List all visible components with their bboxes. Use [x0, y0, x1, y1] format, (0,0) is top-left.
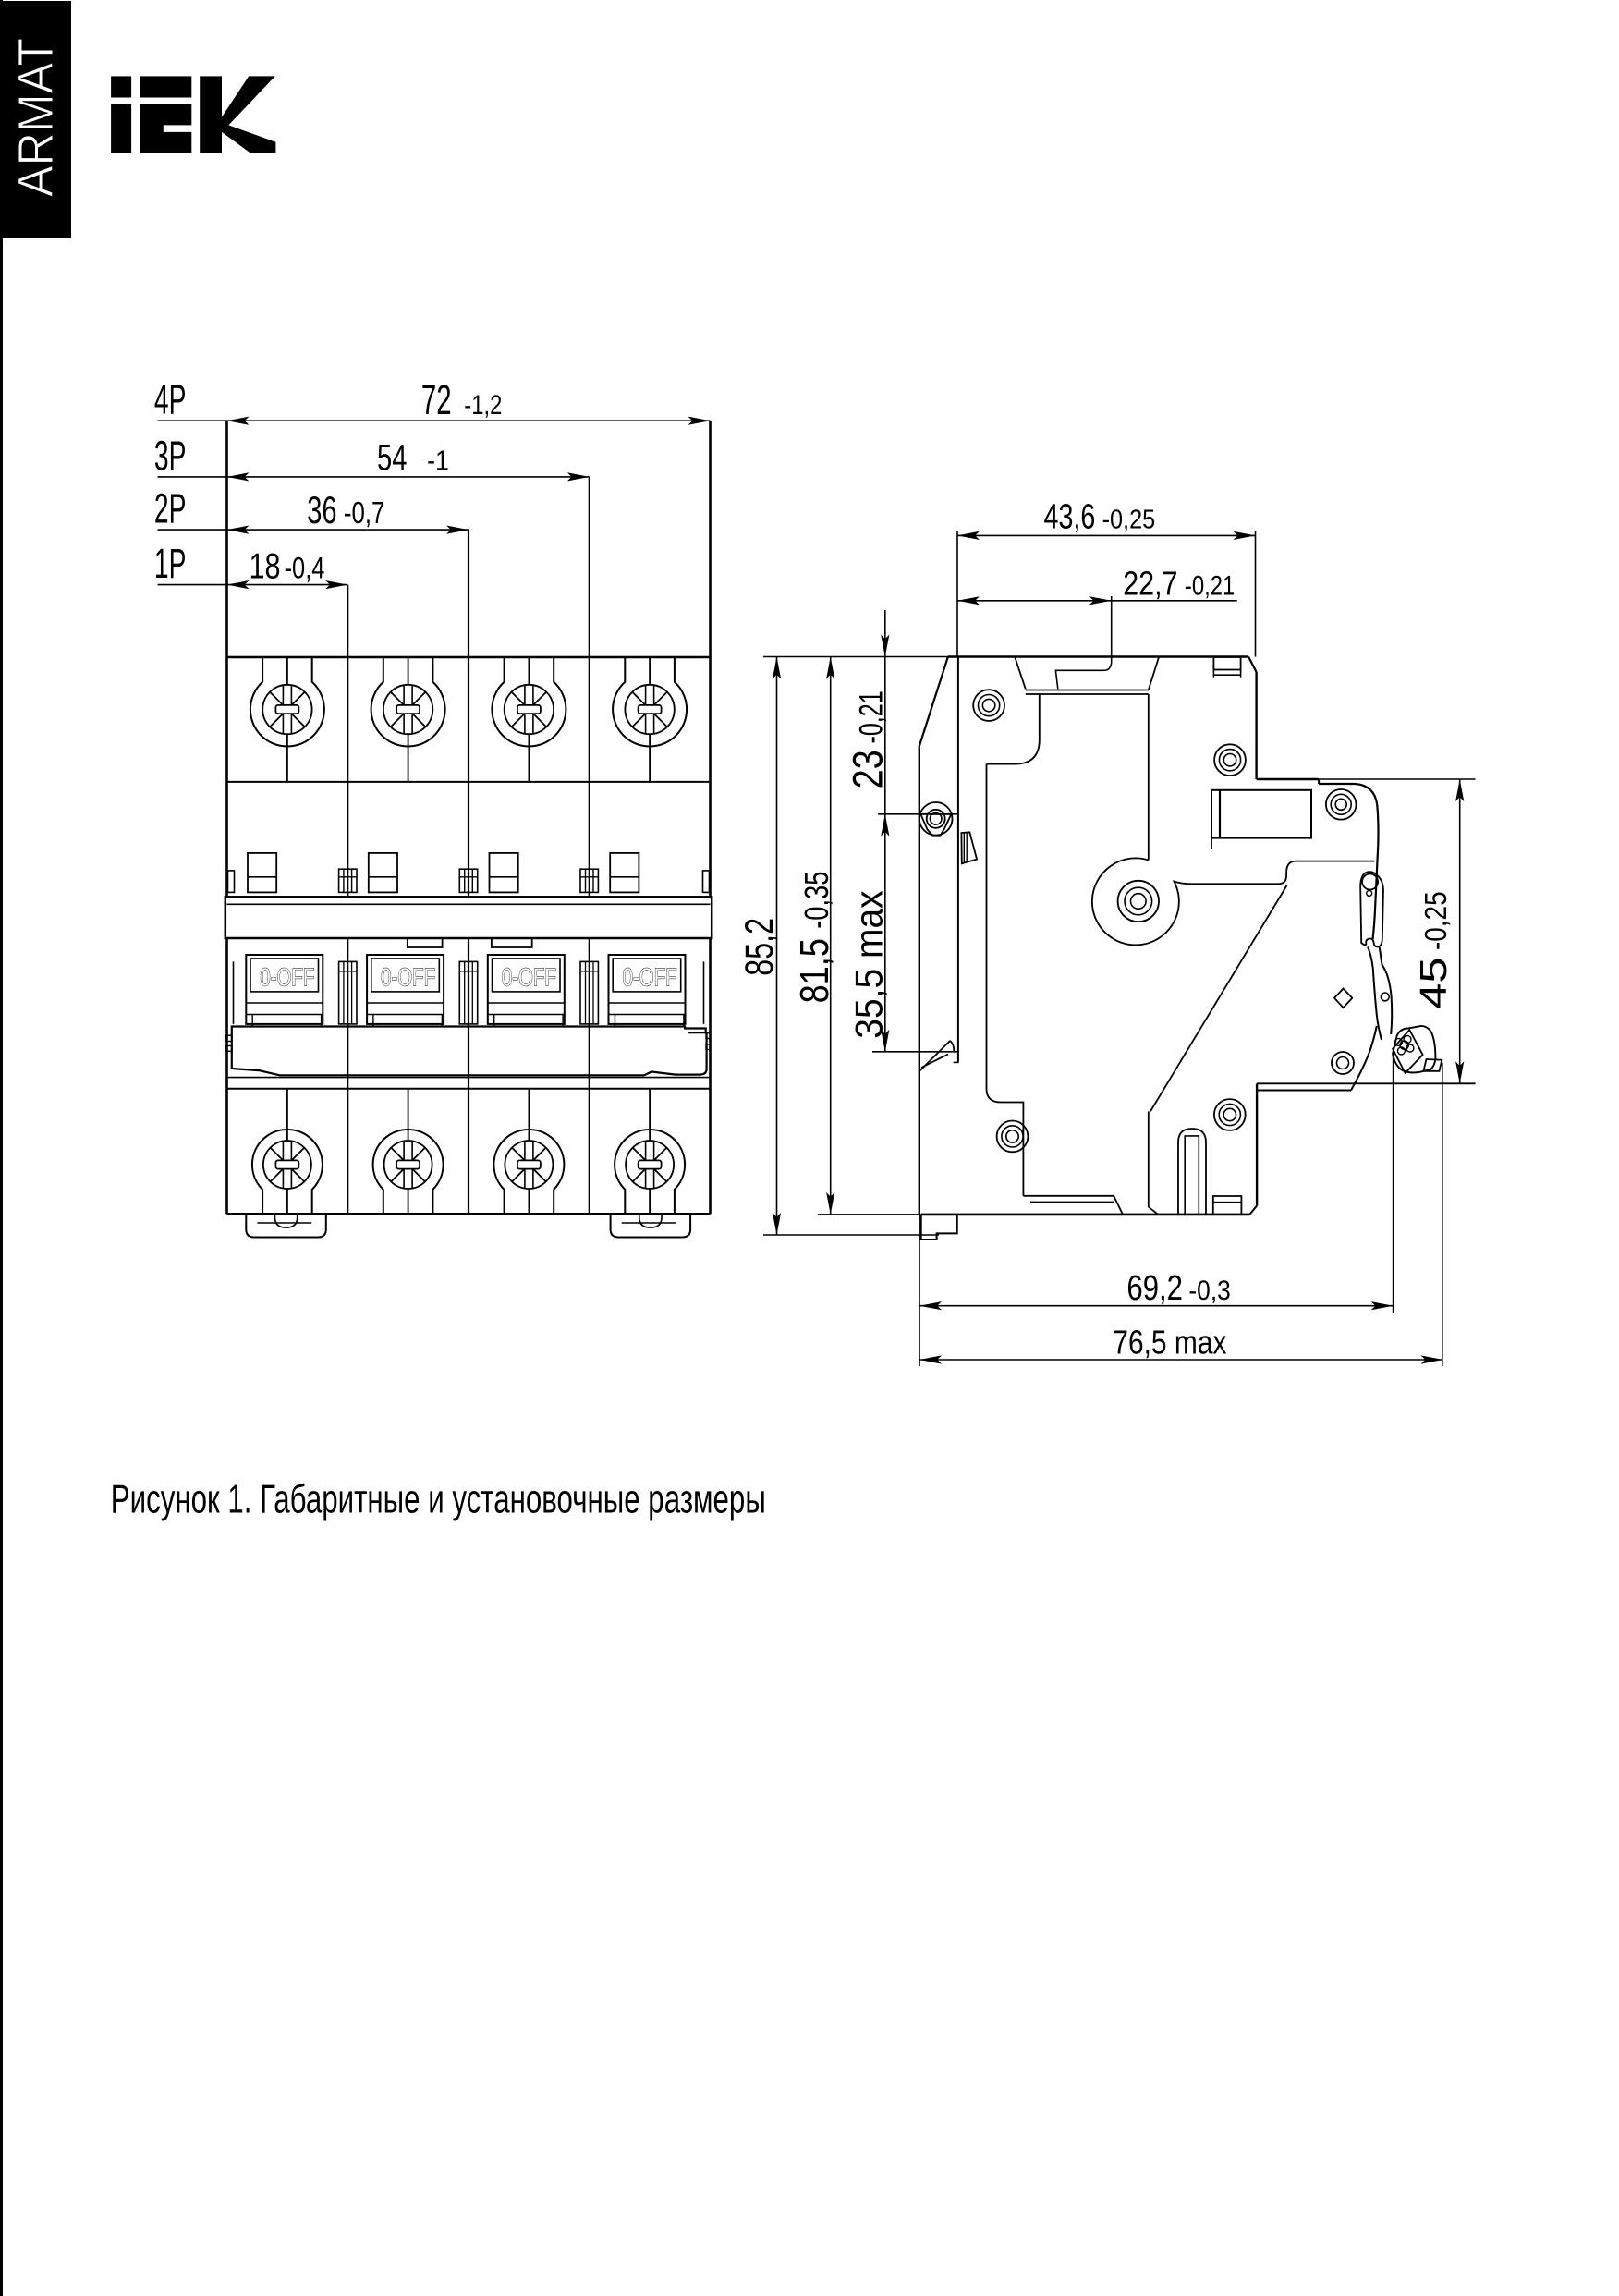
svg-text:54: 54	[377, 438, 407, 479]
svg-text:85,2: 85,2	[737, 918, 782, 976]
svg-text:-0,25: -0,25	[1102, 505, 1156, 534]
svg-text:-0,3: -0,3	[1188, 1276, 1230, 1306]
svg-text:4P: 4P	[154, 376, 187, 423]
svg-text:22,7: 22,7	[1123, 565, 1177, 603]
svg-text:0-OFF: 0-OFF	[260, 962, 314, 991]
svg-text:0-OFF: 0-OFF	[623, 962, 677, 991]
svg-text:69,2: 69,2	[1126, 1269, 1183, 1308]
svg-text:0-OFF: 0-OFF	[502, 962, 556, 991]
svg-text:81,5: 81,5	[792, 938, 837, 1003]
svg-text:-0,4: -0,4	[285, 551, 325, 584]
svg-text:2P: 2P	[154, 485, 187, 532]
svg-text:0-OFF: 0-OFF	[381, 962, 435, 991]
svg-text:23: 23	[844, 750, 891, 788]
svg-text:-1: -1	[427, 445, 449, 477]
svg-text:35,5 max: 35,5 max	[846, 890, 890, 1038]
svg-text:-0,7: -0,7	[344, 495, 385, 530]
svg-text:Рисунок 1. Габаритные и устано: Рисунок 1. Габаритные и установочные раз…	[111, 1477, 766, 1522]
svg-text:43,6: 43,6	[1044, 497, 1096, 536]
svg-text:76,5 max: 76,5 max	[1113, 1324, 1226, 1362]
svg-text:3P: 3P	[154, 432, 187, 479]
svg-text:72: 72	[421, 376, 452, 423]
svg-text:45: 45	[1412, 958, 1455, 1009]
svg-text:1P: 1P	[154, 540, 187, 587]
svg-text:ARMAT: ARMAT	[8, 38, 64, 197]
svg-text:-0,25: -0,25	[1418, 891, 1453, 950]
svg-text:-0,35: -0,35	[797, 872, 835, 929]
svg-text:18: 18	[250, 546, 281, 586]
svg-text:-1,2: -1,2	[464, 390, 502, 421]
svg-text:36: 36	[307, 488, 336, 531]
svg-text:-0,21: -0,21	[853, 690, 889, 743]
svg-text:-0,21: -0,21	[1185, 571, 1235, 602]
